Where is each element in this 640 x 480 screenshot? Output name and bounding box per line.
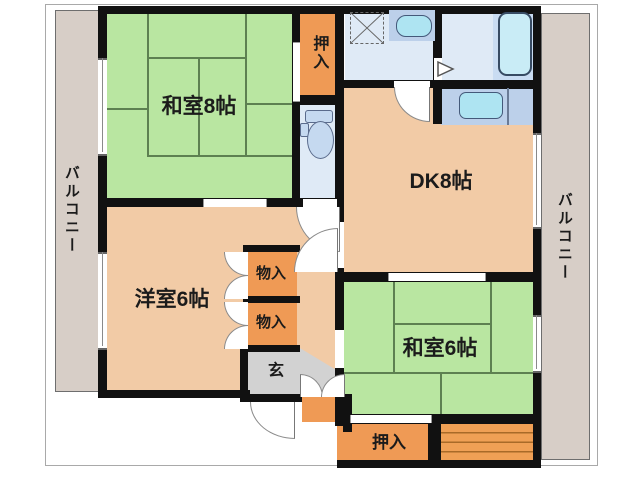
wall — [292, 6, 300, 207]
tatami-line — [393, 282, 395, 372]
wall — [98, 6, 541, 14]
sliding-door — [388, 273, 486, 281]
sliding-door — [293, 42, 300, 102]
wall — [243, 296, 300, 303]
tatami-line — [147, 155, 292, 157]
closet-label-monoire-upper: 物入 — [256, 266, 286, 282]
closet-label-oshiire-top: 押入 — [310, 35, 327, 71]
tatami-line — [147, 57, 245, 59]
tatami-line — [490, 282, 492, 372]
door-opening — [303, 199, 337, 207]
wall — [441, 80, 541, 89]
wall — [533, 6, 541, 468]
washing-machine-pan-icon — [350, 12, 384, 44]
window — [533, 315, 541, 373]
room-label-yoshitsu6: 洋室6帖 — [135, 289, 210, 311]
tatami-line — [147, 14, 149, 155]
wall — [243, 345, 300, 352]
genkan-label: 玄 — [268, 364, 284, 381]
window-glass-line — [102, 252, 103, 346]
toilet-bowl-icon — [307, 121, 334, 159]
tatami-line — [440, 372, 442, 414]
window-glass-line — [102, 58, 103, 152]
closet-label-oshiire-bottom: 押入 — [372, 434, 406, 452]
bathtub-icon — [498, 12, 532, 76]
door-opening — [335, 330, 344, 368]
tatami-line — [107, 108, 147, 110]
window-glass-line — [536, 133, 537, 225]
bathroom-door-icon — [437, 60, 455, 78]
kitchen-sink-icon — [459, 92, 503, 119]
sliding-door — [350, 415, 432, 423]
tatami-line — [393, 323, 490, 325]
window — [533, 133, 541, 229]
balcony-label-left: バルコニー — [63, 165, 79, 255]
floor-plan: 和室8帖 DK8帖 洋室6帖 和室6帖 押入 物入 物入 玄 押入 バルコニー … — [0, 0, 640, 480]
wall — [343, 394, 352, 432]
wall — [240, 345, 248, 402]
tatami-line — [245, 103, 292, 105]
room-label-washitsu8: 和室8帖 — [162, 96, 237, 118]
balcony-label-right: バルコニー — [556, 192, 572, 282]
shelf-closet-striped — [440, 422, 533, 462]
wall — [240, 394, 302, 402]
tatami-line — [245, 14, 247, 155]
sliding-door — [203, 199, 267, 207]
room-label-washitsu6: 和室6帖 — [403, 338, 478, 360]
closet-label-monoire-lower: 物入 — [256, 315, 286, 331]
wall — [243, 245, 300, 252]
washbasin-icon — [396, 15, 432, 37]
room-label-dk: DK8帖 — [409, 171, 472, 193]
wall — [98, 390, 250, 398]
window-glass-line — [536, 315, 537, 369]
tatami-line — [344, 372, 533, 374]
counter-divider — [507, 88, 509, 125]
